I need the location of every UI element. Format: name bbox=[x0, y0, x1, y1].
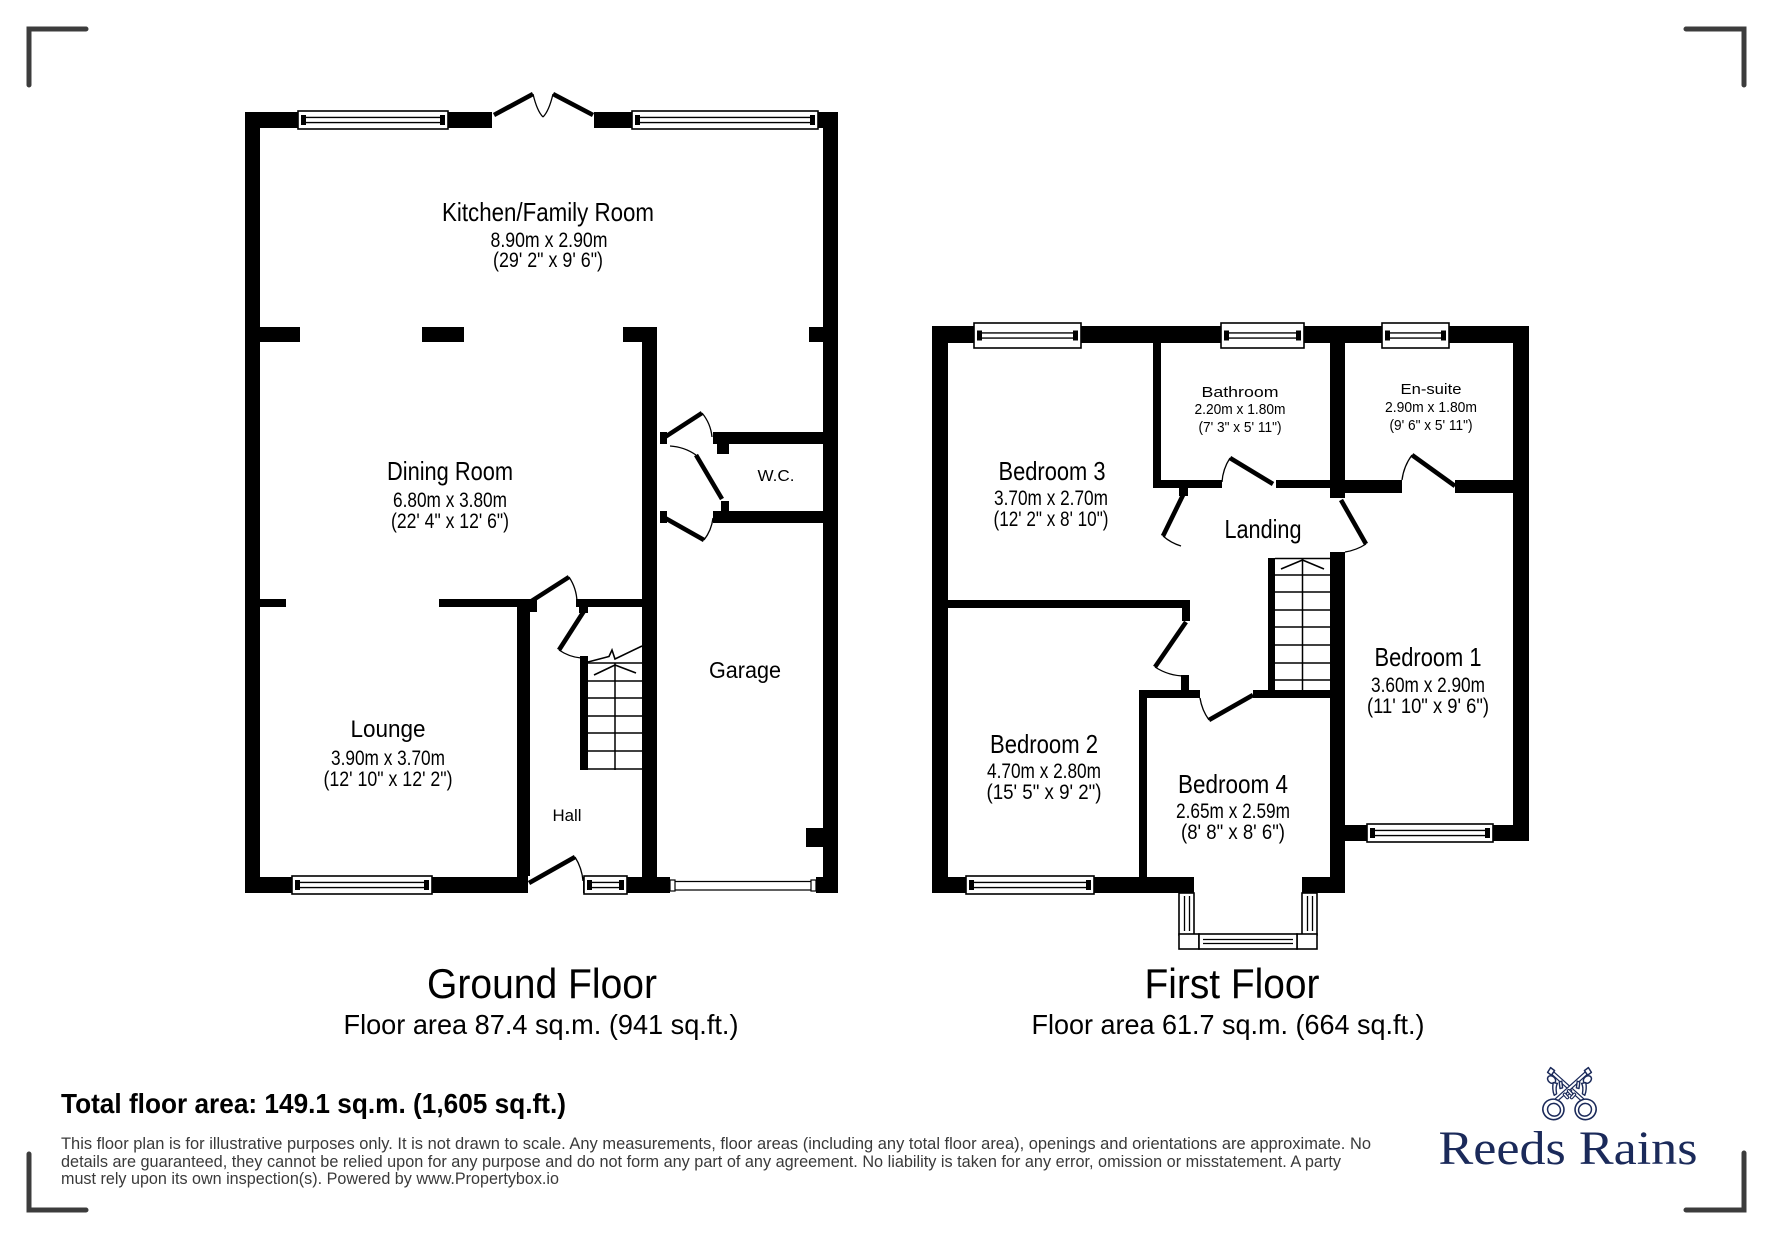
svg-text:2.65m x 2.59m: 2.65m x 2.59m bbox=[1176, 800, 1290, 823]
svg-text:This floor plan is for illustr: This floor plan is for illustrative purp… bbox=[61, 1134, 1371, 1153]
svg-text:Dining Room: Dining Room bbox=[387, 456, 513, 486]
svg-text:3.60m x 2.90m: 3.60m x 2.90m bbox=[1371, 674, 1485, 697]
svg-text:Floor area 61.7 sq.m. (664 sq.: Floor area 61.7 sq.m. (664 sq.ft.) bbox=[1032, 1009, 1425, 1040]
svg-text:(12' 10" x 12' 2"): (12' 10" x 12' 2") bbox=[324, 768, 453, 791]
svg-text:Hall: Hall bbox=[553, 806, 582, 825]
svg-text:2.90m x 1.80m: 2.90m x 1.80m bbox=[1385, 399, 1477, 416]
svg-text:Landing: Landing bbox=[1225, 514, 1302, 544]
svg-text:Bedroom 1: Bedroom 1 bbox=[1375, 642, 1482, 672]
svg-text:(22' 4" x 12' 6"): (22' 4" x 12' 6") bbox=[391, 510, 509, 533]
svg-text:Lounge: Lounge bbox=[351, 716, 426, 743]
svg-text:4.70m x 2.80m: 4.70m x 2.80m bbox=[987, 760, 1101, 783]
svg-text:Total floor area: 149.1 sq.m.: Total floor area: 149.1 sq.m. (1,605 sq.… bbox=[61, 1088, 566, 1119]
svg-text:6.80m x 3.80m: 6.80m x 3.80m bbox=[393, 489, 507, 512]
svg-text:Bedroom 2: Bedroom 2 bbox=[990, 729, 1098, 759]
svg-text:2.20m x 1.80m: 2.20m x 1.80m bbox=[1195, 401, 1286, 418]
svg-text:Reeds Rains: Reeds Rains bbox=[1439, 1122, 1698, 1175]
svg-text:Garage: Garage bbox=[709, 657, 781, 683]
svg-text:(12' 2" x 8' 10"): (12' 2" x 8' 10") bbox=[994, 508, 1109, 531]
svg-text:(7' 3" x 5' 11"): (7' 3" x 5' 11") bbox=[1199, 419, 1282, 436]
svg-text:Bedroom 4: Bedroom 4 bbox=[1178, 769, 1288, 799]
svg-text:(11' 10" x 9' 6"): (11' 10" x 9' 6") bbox=[1367, 695, 1489, 718]
svg-text:3.70m x 2.70m: 3.70m x 2.70m bbox=[994, 487, 1108, 510]
svg-text:Ground Floor: Ground Floor bbox=[427, 960, 657, 1007]
svg-text:3.90m x 3.70m: 3.90m x 3.70m bbox=[331, 747, 445, 770]
svg-text:Floor area 87.4 sq.m. (941 sq.: Floor area 87.4 sq.m. (941 sq.ft.) bbox=[344, 1009, 739, 1040]
svg-text:Kitchen/Family Room: Kitchen/Family Room bbox=[442, 197, 654, 227]
svg-text:W.C.: W.C. bbox=[758, 468, 795, 485]
svg-text:(9' 6" x 5' 11"): (9' 6" x 5' 11") bbox=[1390, 417, 1473, 434]
svg-text:Bathroom: Bathroom bbox=[1202, 384, 1279, 401]
svg-text:(15' 5" x 9' 2"): (15' 5" x 9' 2") bbox=[987, 781, 1102, 804]
svg-text:(29' 2" x 9' 6"): (29' 2" x 9' 6") bbox=[493, 249, 603, 272]
svg-text:(8' 8" x 8' 6"): (8' 8" x 8' 6") bbox=[1181, 821, 1285, 844]
svg-text:Bedroom 3: Bedroom 3 bbox=[999, 456, 1106, 486]
svg-text:First Floor: First Floor bbox=[1145, 960, 1320, 1007]
svg-text:En-suite: En-suite bbox=[1401, 381, 1462, 398]
svg-text:must rely upon its own inspect: must rely upon its own inspection(s). Po… bbox=[61, 1169, 559, 1188]
